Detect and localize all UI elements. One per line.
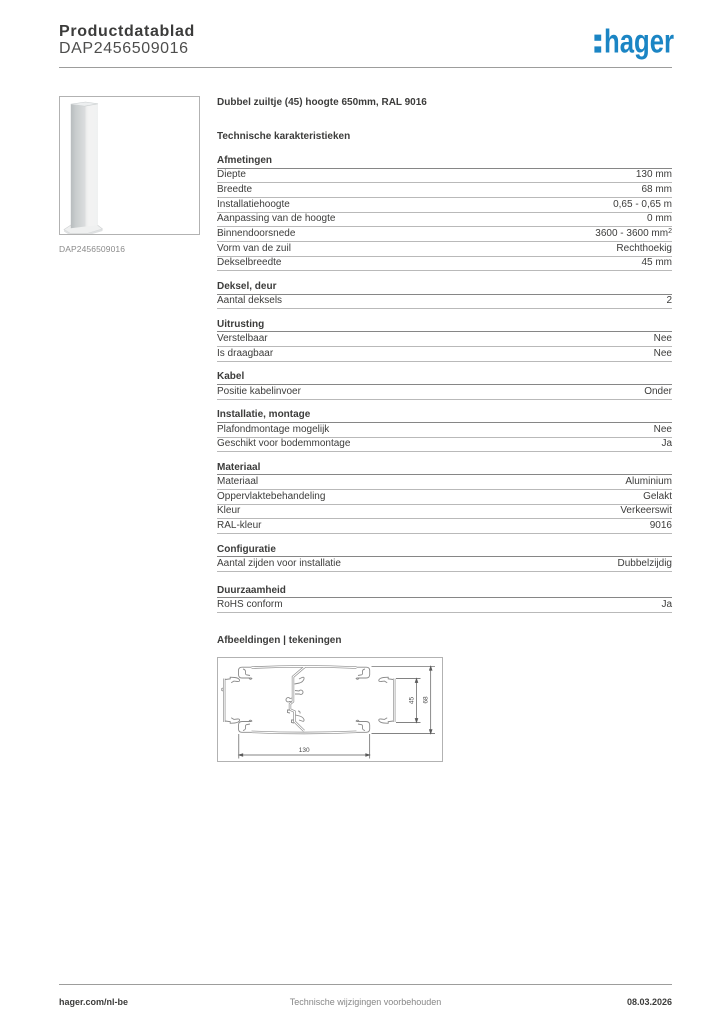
svg-text:130: 130 xyxy=(299,747,310,754)
svg-text:45: 45 xyxy=(408,697,415,705)
svg-text:hager: hager xyxy=(604,26,674,60)
svg-text:68: 68 xyxy=(423,696,430,704)
